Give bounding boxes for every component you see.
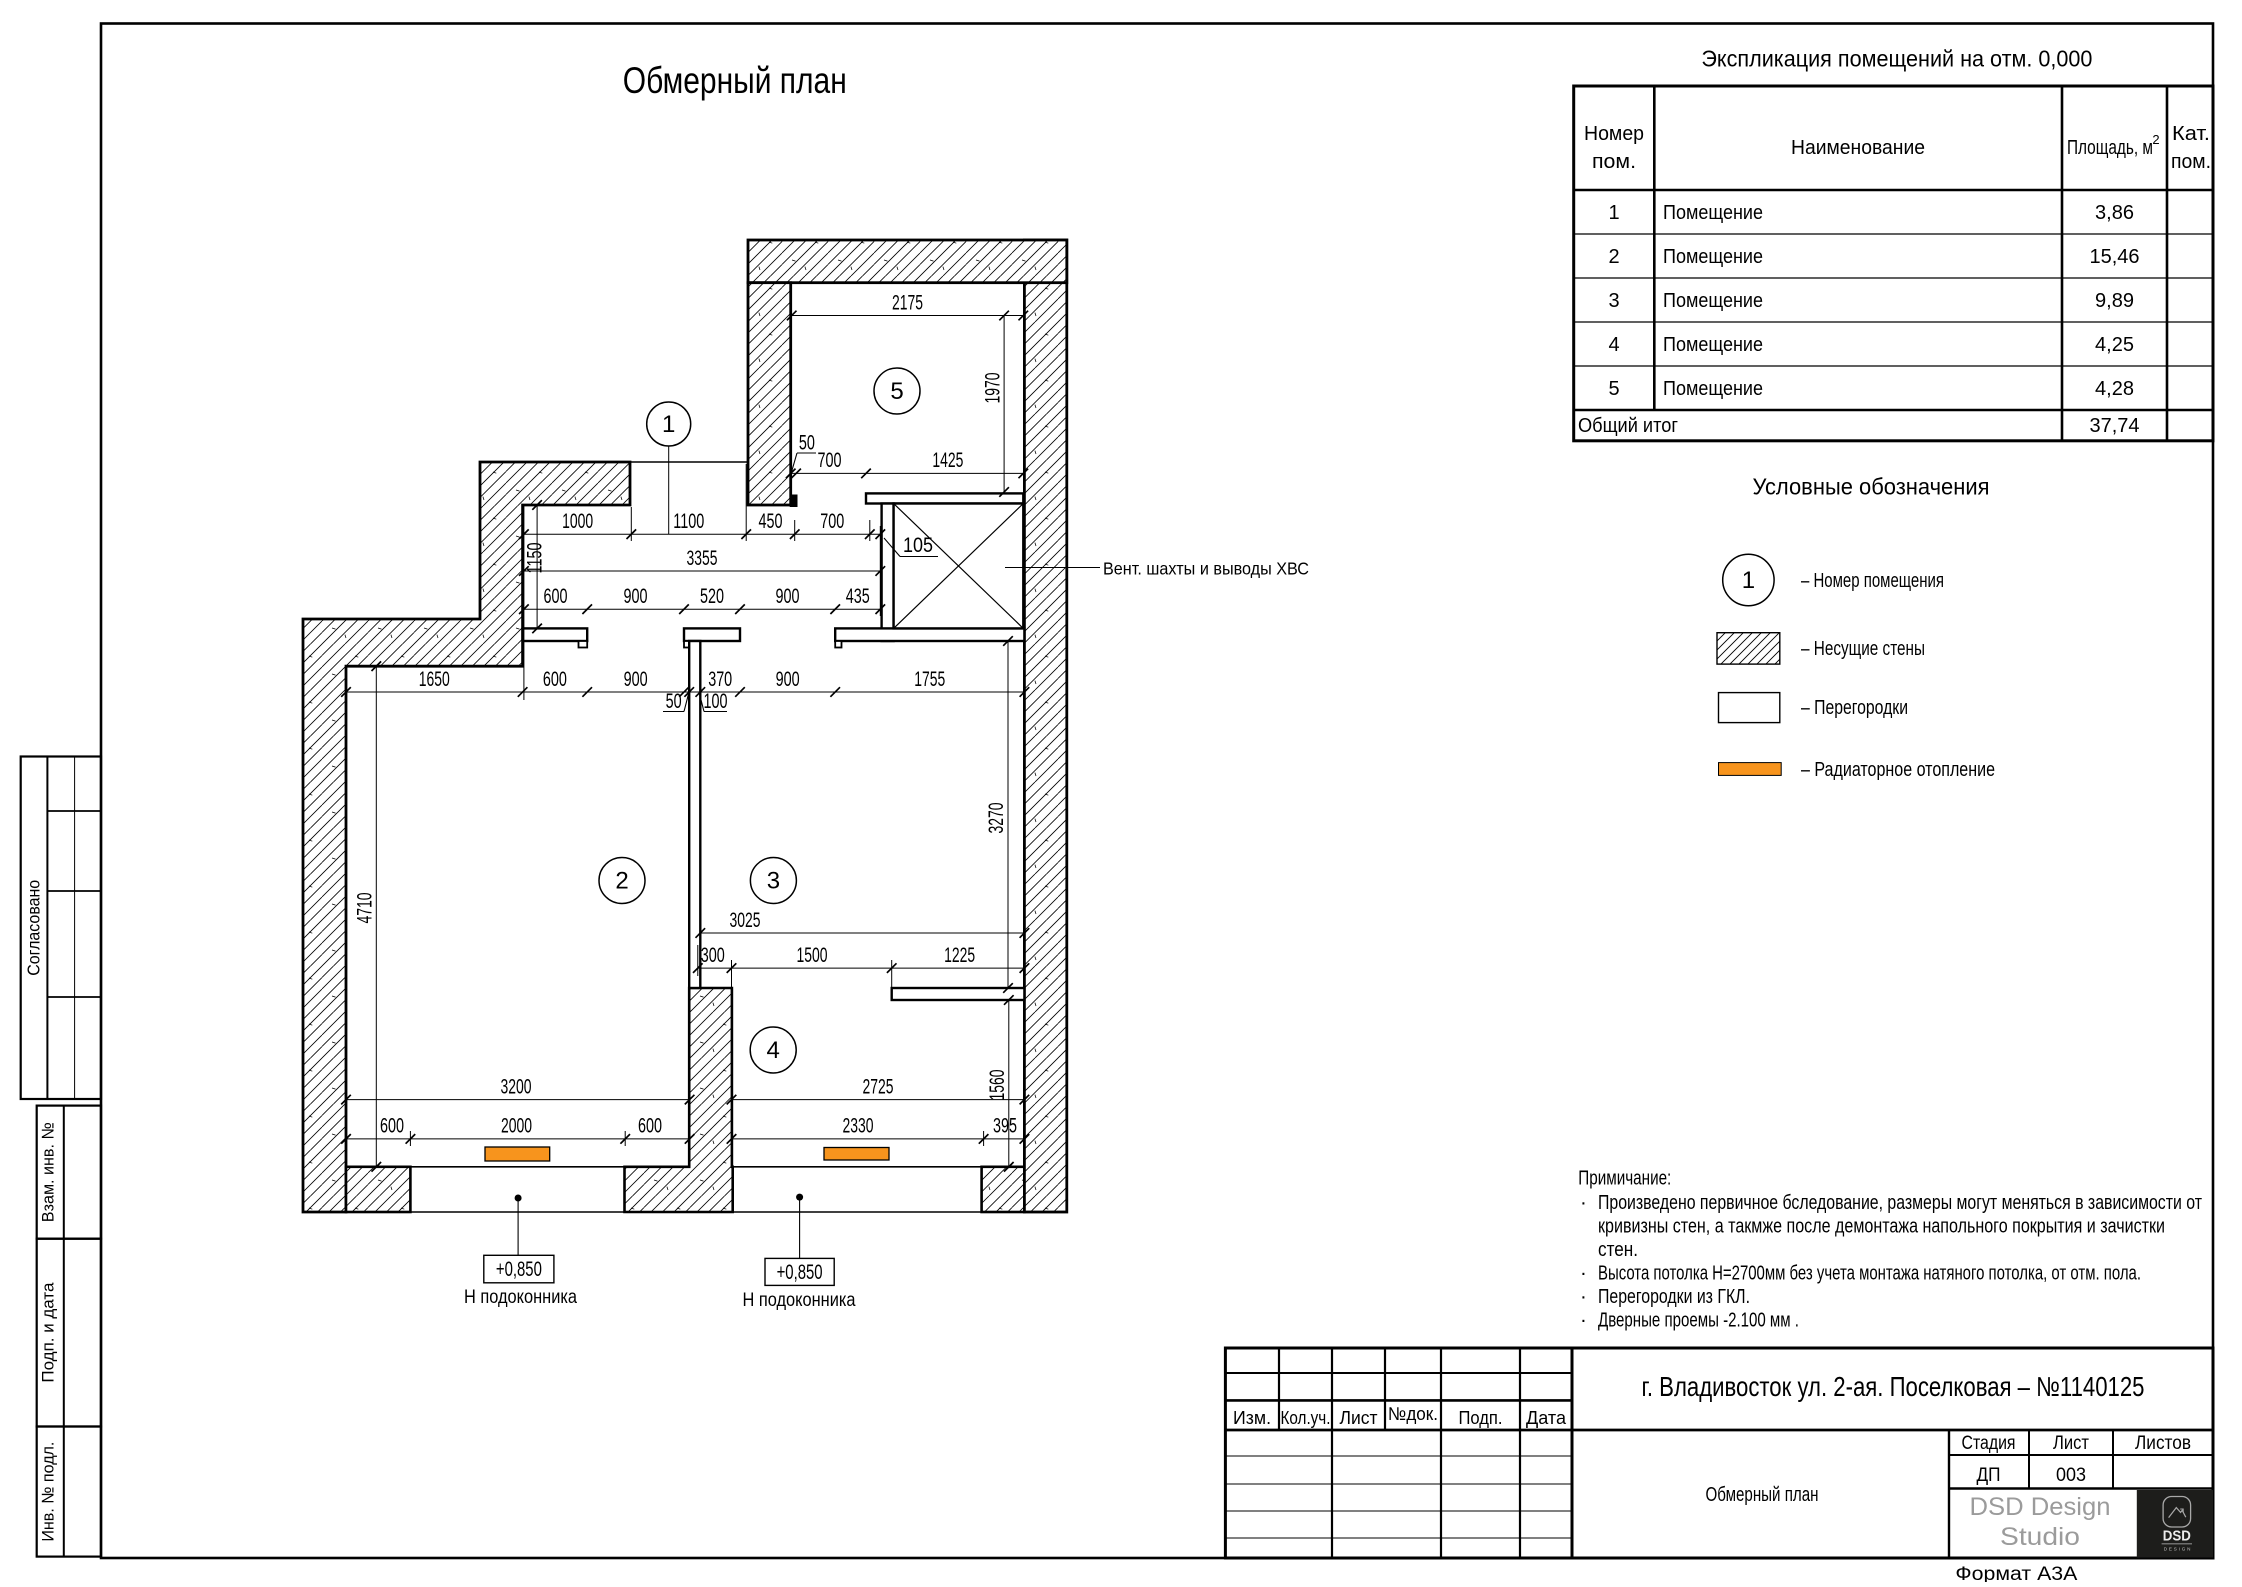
svg-text:105: 105: [903, 534, 933, 557]
svg-text:Перегородки из ГКЛ.: Перегородки из ГКЛ.: [1598, 1285, 1750, 1308]
svg-text:900: 900: [776, 668, 800, 691]
svg-text:3: 3: [767, 868, 780, 895]
svg-text:3: 3: [1608, 290, 1619, 312]
svg-text:Общий итог: Общий итог: [1578, 415, 1678, 437]
svg-text:1425: 1425: [932, 449, 963, 472]
svg-text:DESIGN: DESIGN: [2164, 1547, 2192, 1552]
svg-text:3200: 3200: [501, 1075, 532, 1098]
svg-text:Н подоконника: Н подоконника: [743, 1289, 856, 1311]
svg-text:100: 100: [704, 690, 728, 713]
svg-text:2330: 2330: [843, 1115, 874, 1138]
svg-text:2: 2: [615, 868, 628, 895]
svg-text:2: 2: [1608, 246, 1619, 268]
svg-text:Помещение: Помещение: [1663, 202, 1763, 224]
svg-text:3,86: 3,86: [2095, 202, 2134, 224]
svg-text:Помещение: Помещение: [1663, 290, 1763, 312]
svg-text:600: 600: [380, 1115, 404, 1138]
svg-text:Обмерный план: Обмерный план: [623, 60, 847, 101]
svg-text:стен.: стен.: [1598, 1238, 1638, 1261]
svg-text:Наименование: Наименование: [1791, 137, 1925, 159]
svg-text:4,28: 4,28: [2095, 378, 2134, 400]
svg-text:4: 4: [767, 1037, 780, 1064]
svg-text:1100: 1100: [673, 510, 704, 533]
svg-text:Studio: Studio: [2000, 1523, 2080, 1551]
svg-text:Номер: Номер: [1584, 123, 1644, 145]
svg-text:Лист: Лист: [2053, 1433, 2089, 1454]
svg-text:– Несущие стены: – Несущие стены: [1801, 638, 1925, 660]
svg-text:Помещение: Помещение: [1663, 378, 1763, 400]
svg-text:1755: 1755: [914, 668, 945, 691]
svg-text:Вент. шахты и выводы ХВС: Вент. шахты и выводы ХВС: [1103, 559, 1309, 579]
svg-text:450: 450: [759, 510, 783, 533]
svg-text:Изм.: Изм.: [1233, 1407, 1271, 1428]
svg-text:·: ·: [1580, 1262, 1587, 1285]
svg-text:Дверные проемы -2.100 мм .: Дверные проемы -2.100 мм .: [1598, 1309, 1799, 1332]
svg-text:9,89: 9,89: [2095, 290, 2134, 312]
svg-text:Лист: Лист: [1340, 1407, 1378, 1428]
svg-text:Дата: Дата: [1526, 1407, 1567, 1428]
svg-text:Н подоконника: Н подоконника: [464, 1286, 577, 1308]
svg-text:2: 2: [2152, 132, 2159, 147]
svg-text:003: 003: [2056, 1465, 2086, 1486]
svg-text:·: ·: [1580, 1191, 1587, 1214]
svg-text:Стадия: Стадия: [1962, 1433, 2016, 1454]
svg-text:DSD Design: DSD Design: [1970, 1493, 2111, 1521]
svg-text:4,25: 4,25: [2095, 334, 2134, 356]
svg-text:1150: 1150: [523, 543, 546, 574]
svg-text:4710: 4710: [354, 893, 377, 924]
svg-text:Помещение: Помещение: [1663, 334, 1763, 356]
svg-text:Кат.: Кат.: [2172, 123, 2210, 145]
svg-text:600: 600: [543, 668, 567, 691]
svg-text:1650: 1650: [419, 668, 450, 691]
svg-text:4: 4: [1608, 334, 1619, 356]
svg-text:Инв. № подл.: Инв. № подл.: [39, 1442, 58, 1542]
svg-text:2000: 2000: [501, 1115, 532, 1138]
svg-text:50: 50: [799, 432, 815, 455]
svg-text:DSD: DSD: [2163, 1528, 2191, 1545]
svg-text:– Номер помещения: – Номер помещения: [1801, 570, 1944, 592]
svg-text:Обмерный план: Обмерный план: [1706, 1484, 1819, 1506]
svg-text:Помещение: Помещение: [1663, 246, 1763, 268]
svg-text:ДП: ДП: [1977, 1465, 2001, 1486]
svg-text:600: 600: [638, 1115, 662, 1138]
svg-text:пом.: пом.: [2171, 151, 2211, 173]
svg-text:3270: 3270: [985, 803, 1008, 834]
svg-text:Кол.уч.: Кол.уч.: [1281, 1407, 1331, 1428]
svg-text:3355: 3355: [687, 547, 718, 570]
svg-text:5: 5: [1608, 378, 1619, 400]
svg-text:Условные обозначения: Условные обозначения: [1753, 474, 1990, 500]
svg-text:900: 900: [624, 585, 648, 608]
svg-text:600: 600: [544, 585, 568, 608]
svg-text:Высота потолка Н=2700мм без уч: Высота потолка Н=2700мм без учета монтаж…: [1598, 1262, 2141, 1285]
svg-text:– Перегородки: – Перегородки: [1801, 697, 1908, 719]
svg-text:1000: 1000: [562, 510, 593, 533]
svg-text:1: 1: [1608, 202, 1619, 224]
svg-text:·: ·: [1580, 1285, 1587, 1308]
svg-text:1560: 1560: [986, 1070, 1009, 1101]
svg-text:2725: 2725: [863, 1075, 894, 1098]
svg-text:кривизны стен, а такмже после: кривизны стен, а такмже после демонтажа …: [1598, 1215, 2165, 1238]
svg-text:·: ·: [1580, 1309, 1587, 1332]
svg-text:Подп. и дата: Подп. и дата: [39, 1282, 58, 1383]
svg-text:395: 395: [993, 1115, 1017, 1138]
svg-text:1970: 1970: [981, 373, 1004, 404]
svg-text:Взам. инв. №: Взам. инв. №: [39, 1122, 58, 1222]
svg-text:+0,850: +0,850: [777, 1261, 823, 1284]
svg-text:900: 900: [624, 668, 648, 691]
svg-text:50: 50: [666, 690, 682, 713]
svg-text:1500: 1500: [797, 944, 828, 967]
svg-text:1: 1: [1742, 567, 1755, 594]
svg-text:435: 435: [846, 585, 870, 608]
svg-text:Подп.: Подп.: [1459, 1407, 1503, 1428]
svg-text:300: 300: [701, 944, 725, 967]
svg-text:700: 700: [820, 510, 844, 533]
svg-text:15,46: 15,46: [2089, 246, 2139, 268]
svg-text:900: 900: [776, 585, 800, 608]
svg-text:2175: 2175: [892, 291, 923, 314]
svg-text:37,74: 37,74: [2089, 415, 2139, 437]
svg-text:1: 1: [662, 411, 675, 438]
svg-text:г. Владивосток ул. 2-ая. Посел: г. Владивосток ул. 2-ая. Поселковая – №1…: [1642, 1371, 2145, 1402]
svg-text:– Радиаторное отопление: – Радиаторное отопление: [1801, 759, 1995, 781]
svg-text:Согласовано: Согласовано: [24, 880, 44, 976]
svg-text:Листов: Листов: [2135, 1433, 2191, 1454]
svg-text:Площадь, м: Площадь, м: [2067, 137, 2153, 159]
svg-text:Произведено первичное бследова: Произведено первичное бследование, разме…: [1598, 1191, 2202, 1214]
svg-text:3025: 3025: [730, 909, 761, 932]
svg-text:Экспликация помещений на отм.: Экспликация помещений на отм. 0,000: [1701, 46, 2092, 72]
svg-text:Примичание:: Примичание:: [1578, 1167, 1671, 1190]
svg-text:520: 520: [700, 585, 724, 608]
svg-text:№док.: №док.: [1388, 1403, 1438, 1424]
svg-text:370: 370: [708, 668, 732, 691]
svg-text:Формат А3А: Формат А3А: [1955, 1564, 2077, 1582]
svg-text:700: 700: [818, 449, 842, 472]
svg-text:5: 5: [890, 378, 903, 405]
svg-text:1225: 1225: [944, 944, 975, 967]
svg-text:пом.: пом.: [1592, 151, 1636, 173]
svg-text:+0,850: +0,850: [496, 1258, 542, 1281]
